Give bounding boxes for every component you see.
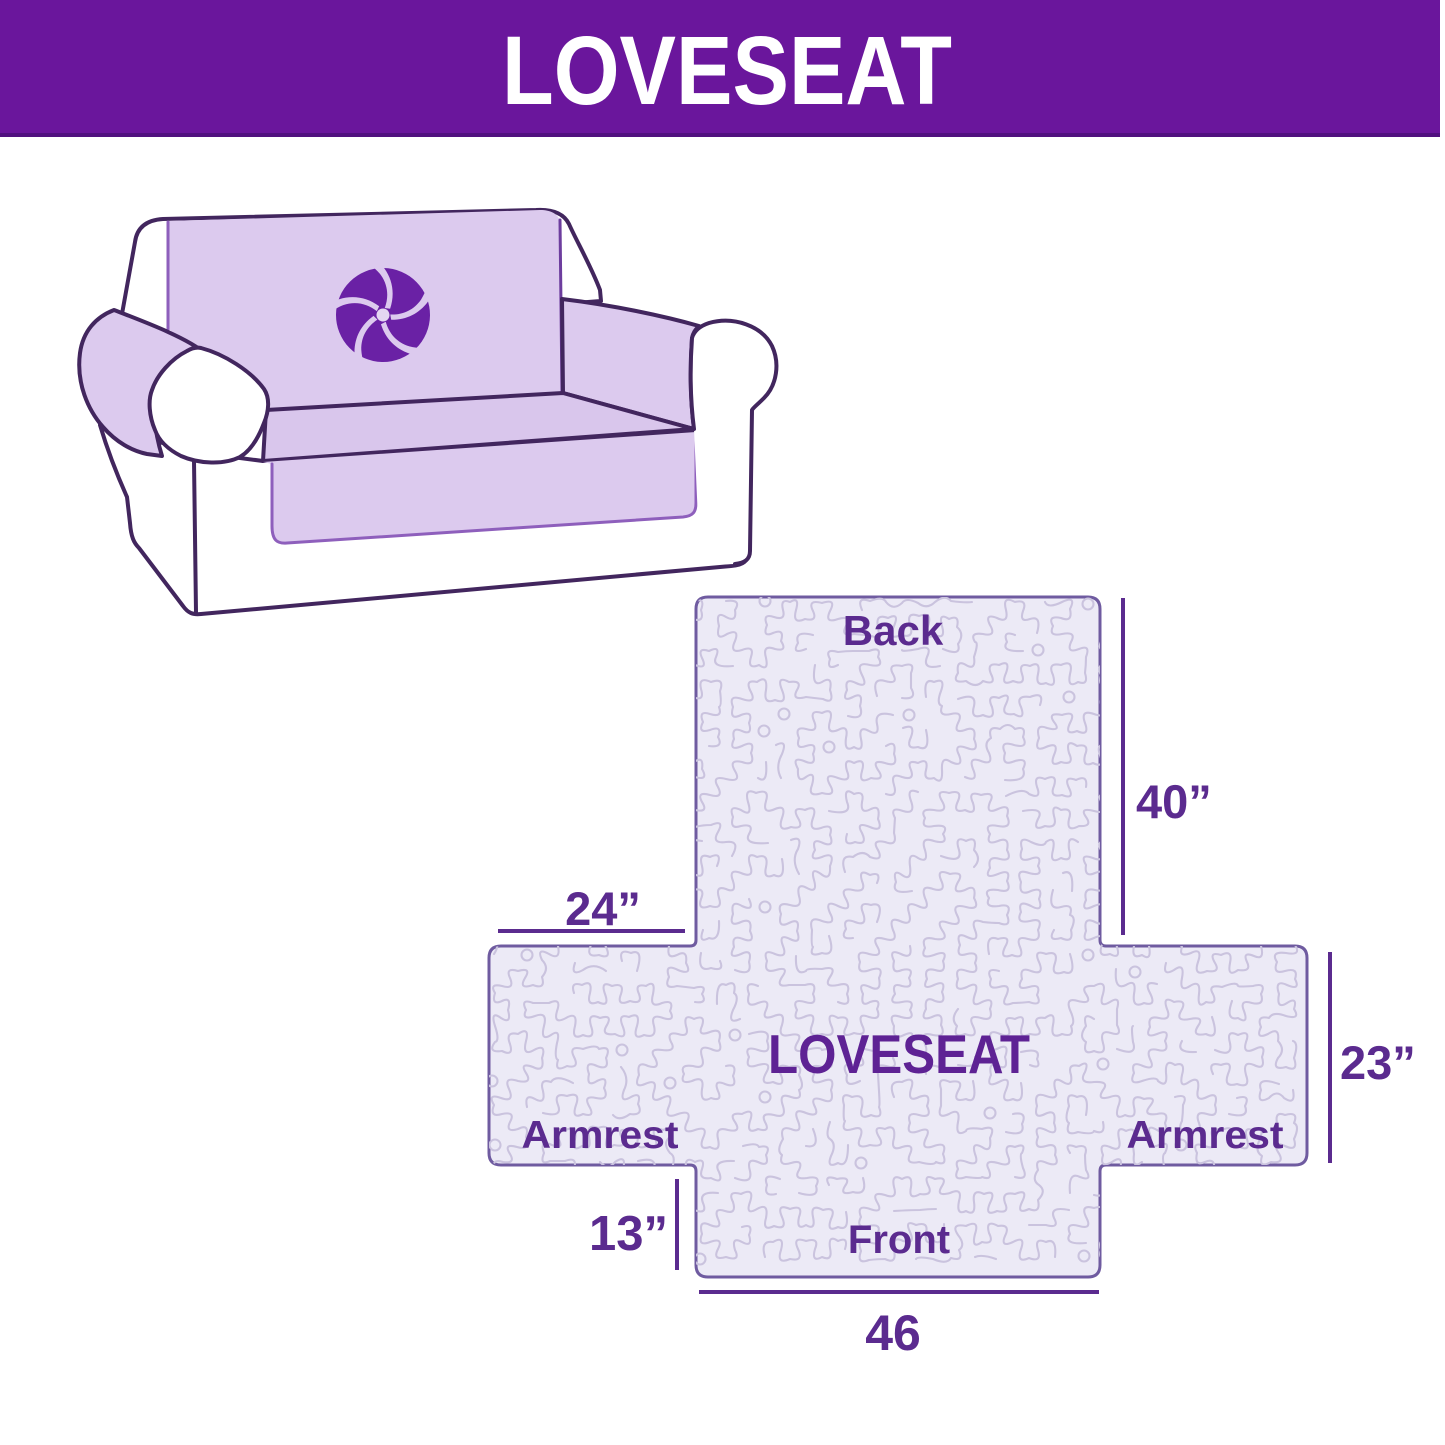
svg-text:23”: 23” [1340,1036,1416,1089]
svg-text:Armrest: Armrest [1127,1114,1284,1157]
svg-text:46: 46 [865,1305,921,1361]
svg-text:Back: Back [843,607,944,654]
svg-text:LOVESEAT: LOVESEAT [502,16,952,125]
svg-text:40”: 40” [1136,775,1212,828]
svg-text:LOVESEAT: LOVESEAT [768,1023,1030,1085]
svg-text:Front: Front [848,1218,950,1262]
svg-text:24”: 24” [565,882,641,935]
svg-text:13”: 13” [589,1207,668,1261]
svg-text:Armrest: Armrest [522,1114,679,1157]
